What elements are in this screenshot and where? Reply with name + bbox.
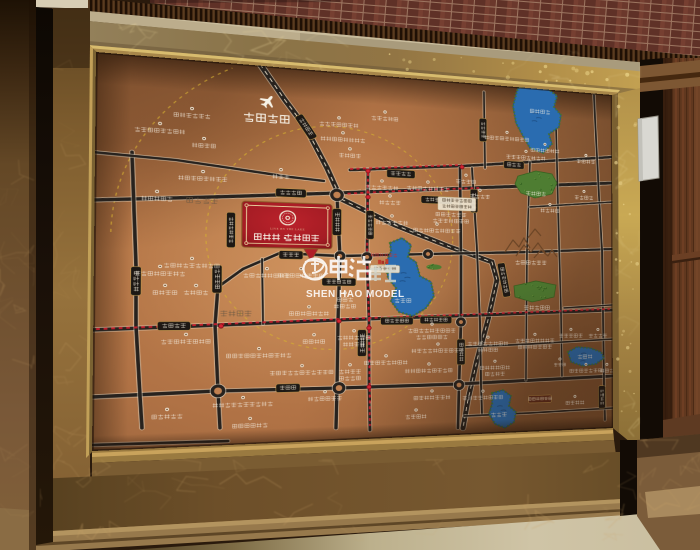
svg-text:SHEN HAO MODEL: SHEN HAO MODEL [306, 289, 405, 300]
